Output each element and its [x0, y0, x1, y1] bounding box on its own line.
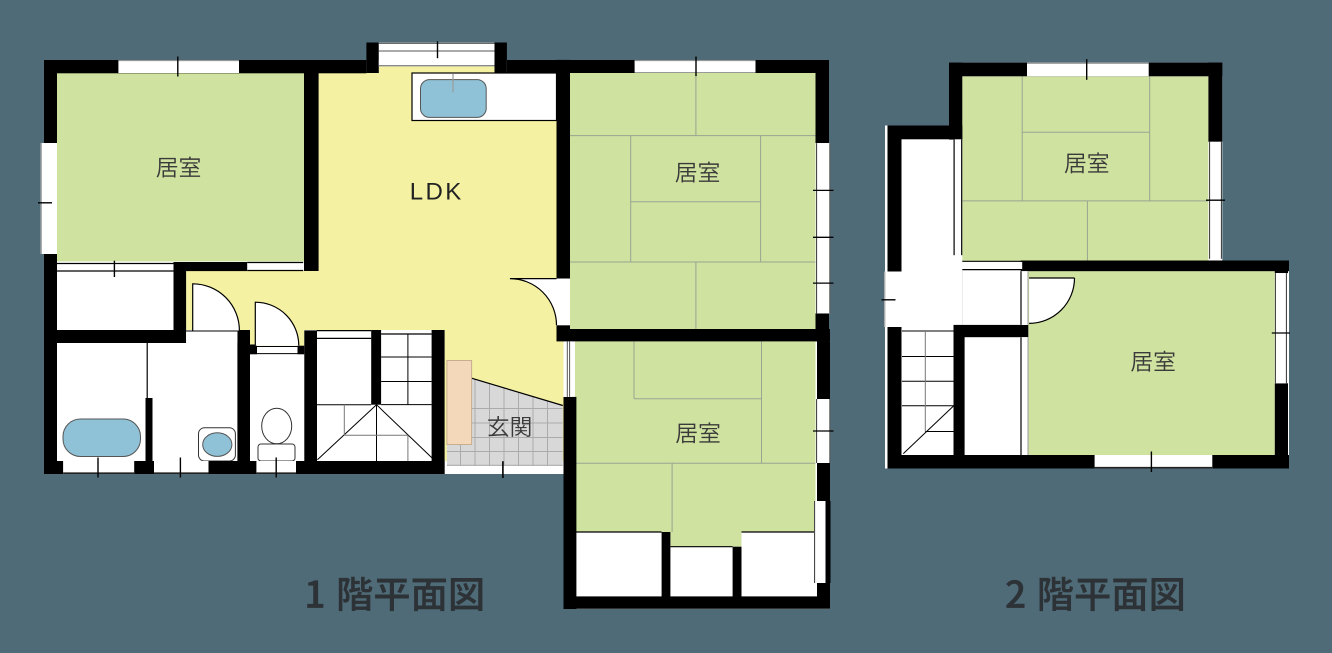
- svg-text:LDK: LDK: [410, 178, 464, 205]
